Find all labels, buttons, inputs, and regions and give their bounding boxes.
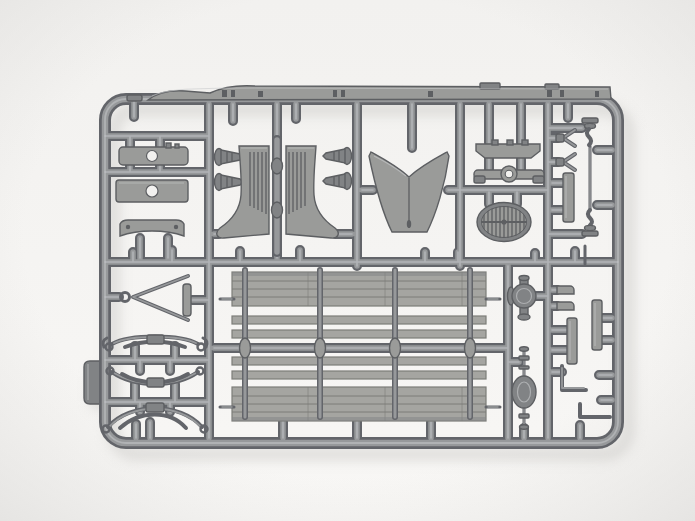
bracket-bar-part-2 [116,180,188,202]
t-bar-part [567,318,577,364]
photo-canvas [0,0,695,521]
radiator-part [477,203,531,242]
fender-runner [272,140,283,252]
flat-bar-part-top [563,173,574,222]
bracket-bar-part-1 [119,143,188,165]
sprue-photo [0,0,695,521]
flat-bar-part-right [592,300,602,350]
